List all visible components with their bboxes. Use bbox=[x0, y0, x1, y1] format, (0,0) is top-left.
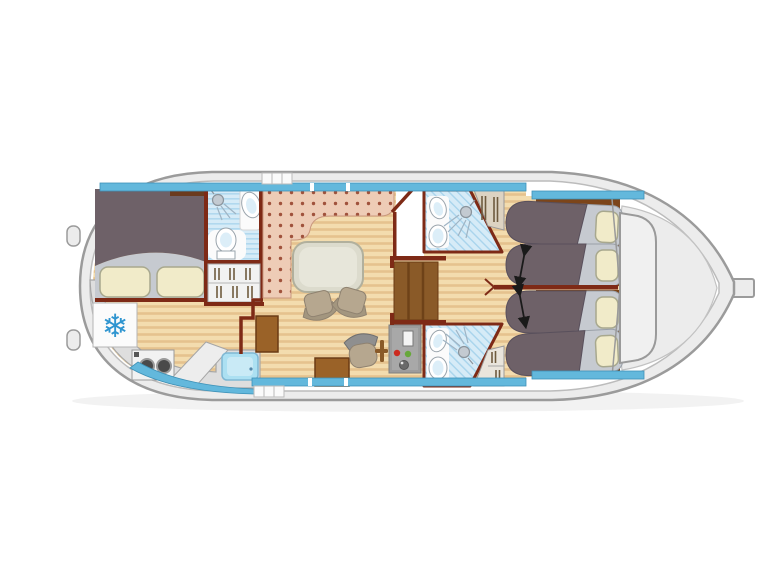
single-bed-1 bbox=[505, 200, 623, 248]
step bbox=[282, 173, 292, 184]
step bbox=[264, 386, 274, 397]
shower-head bbox=[459, 347, 470, 358]
wall-stairs-top-hook bbox=[390, 256, 394, 268]
aft-toilet-bowl bbox=[220, 233, 232, 248]
aft-bed-frame bbox=[95, 298, 206, 302]
side-deck-alcove bbox=[396, 186, 424, 258]
saloon-table-top bbox=[299, 247, 357, 287]
single-bed-4 bbox=[505, 329, 623, 377]
aft-toilet-tank bbox=[217, 251, 235, 259]
fore-toilet-top-bowl bbox=[433, 229, 444, 244]
stove-knob bbox=[134, 352, 139, 357]
console-screen bbox=[403, 331, 413, 346]
trim-tick bbox=[346, 183, 350, 191]
step bbox=[272, 173, 282, 184]
shower-head bbox=[461, 207, 472, 218]
step bbox=[262, 173, 272, 184]
single-bed-2 bbox=[506, 244, 622, 286]
companionway-stairs bbox=[390, 256, 446, 325]
wall-aft-bathroom-left bbox=[204, 186, 208, 306]
bed1-blanket bbox=[505, 200, 587, 246]
fore-bathroom-top bbox=[424, 190, 504, 252]
aft-pillow-right bbox=[157, 267, 204, 297]
stern-fender-top bbox=[67, 226, 80, 246]
wall-stairs-bottom-hook bbox=[390, 313, 394, 325]
fore-toilet-bottom-bowl bbox=[433, 361, 444, 376]
wall-stairs-top bbox=[390, 256, 446, 261]
trim-tick bbox=[308, 378, 312, 386]
sideboard-cabinet bbox=[256, 316, 278, 352]
starboard-light-indicator bbox=[405, 351, 411, 357]
trim-top-fore bbox=[532, 191, 644, 199]
wall-saloon-right bbox=[393, 212, 397, 260]
bed4-blanket bbox=[505, 331, 587, 377]
helm-gauge-needle bbox=[401, 362, 404, 365]
aft-pillow-left bbox=[100, 267, 150, 297]
windshield bbox=[620, 213, 656, 363]
boat-floor-plan: ❄ bbox=[0, 0, 768, 576]
bed3-pillow bbox=[596, 297, 618, 328]
trim-bottom-main bbox=[252, 378, 526, 386]
stairs bbox=[394, 262, 438, 320]
throttle-handle bbox=[375, 349, 388, 353]
sink-drain bbox=[249, 367, 252, 370]
bed2-pillow bbox=[596, 250, 618, 281]
trim-bottom-fore bbox=[532, 371, 644, 379]
stove-burner-right bbox=[157, 359, 171, 373]
trim-tick bbox=[310, 183, 314, 191]
step bbox=[274, 386, 284, 397]
wall-wardrobe-bottom bbox=[204, 302, 264, 306]
snowflake-icon: ❄ bbox=[102, 307, 129, 345]
wall-aft-bathroom-bottom bbox=[204, 260, 262, 264]
boat-floor-plan-canvas: ❄ bbox=[0, 0, 768, 576]
stern-fender-bottom bbox=[67, 330, 80, 350]
fore-bathroom-bottom bbox=[424, 324, 504, 386]
bed3-blanket bbox=[506, 291, 586, 333]
helm-gauge bbox=[400, 361, 409, 370]
galley-sink-basin bbox=[227, 357, 253, 376]
wall-fore-cabin-divider bbox=[494, 285, 618, 290]
trim-tick bbox=[344, 378, 348, 386]
bed2-blanket bbox=[506, 244, 586, 286]
aft-shower-head bbox=[213, 195, 224, 206]
port-light-indicator bbox=[394, 350, 400, 356]
step bbox=[254, 386, 264, 397]
